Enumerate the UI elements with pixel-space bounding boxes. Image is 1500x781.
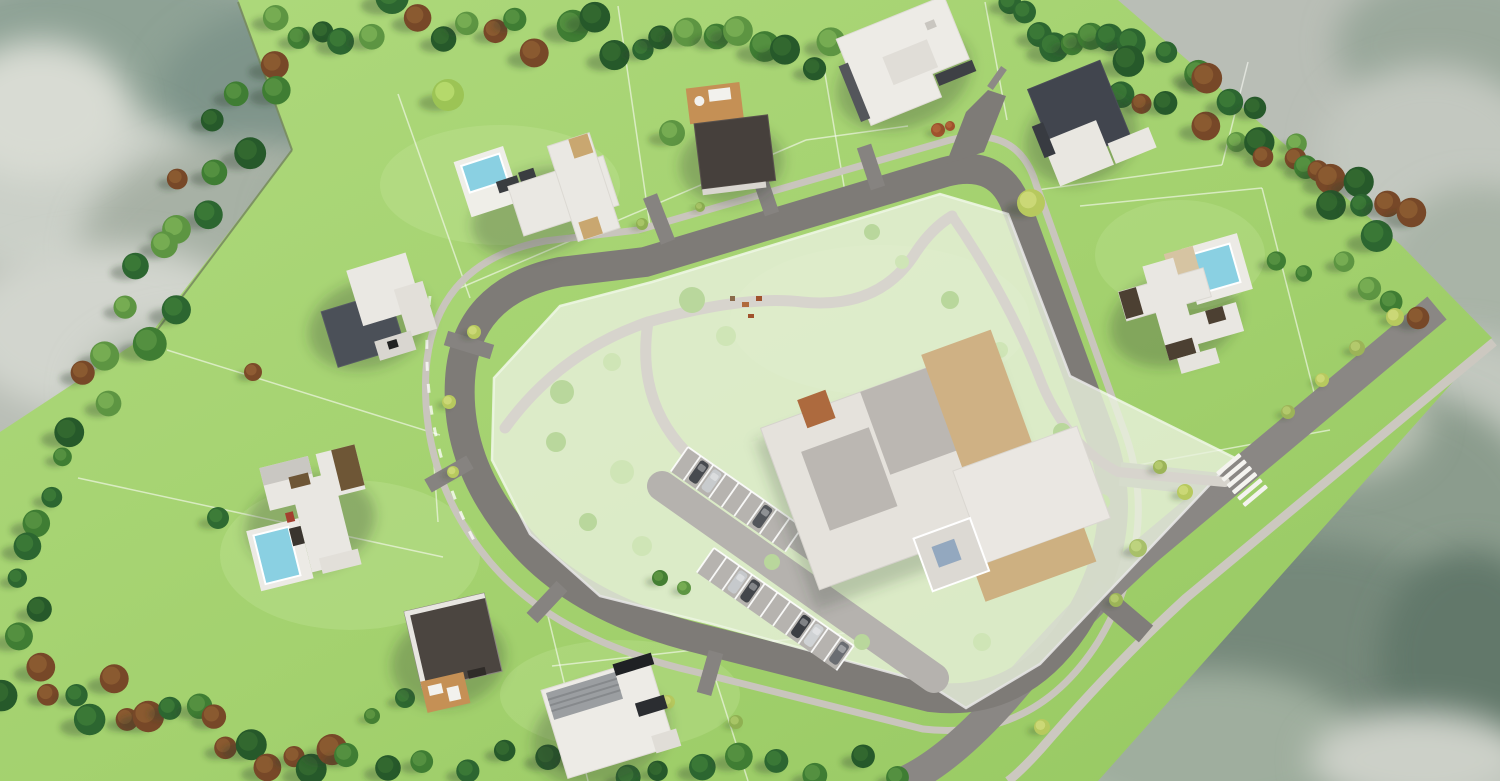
- park-tree: [679, 287, 705, 313]
- park-tree: [632, 536, 652, 556]
- dark-roof: [694, 115, 775, 190]
- site-plan-render: [0, 0, 1500, 781]
- aerial-site-plan-svg: [0, 0, 1500, 781]
- park-tree: [941, 291, 959, 309]
- park-tree: [550, 380, 574, 404]
- park-tree: [603, 353, 621, 371]
- playground-item: [730, 296, 735, 301]
- park-tree: [854, 634, 870, 650]
- playground-item: [742, 302, 749, 307]
- park-tree: [864, 224, 880, 240]
- park-tree: [716, 326, 736, 346]
- park-tree: [546, 432, 566, 452]
- park-tree: [764, 554, 780, 570]
- park-tree: [610, 460, 634, 484]
- playground-item: [748, 314, 754, 318]
- park-tree: [973, 633, 991, 651]
- playground-item: [756, 296, 762, 301]
- park-tree: [579, 513, 597, 531]
- scene-root: [0, 0, 1500, 781]
- park-tree: [895, 255, 909, 269]
- wood-deck: [686, 82, 744, 124]
